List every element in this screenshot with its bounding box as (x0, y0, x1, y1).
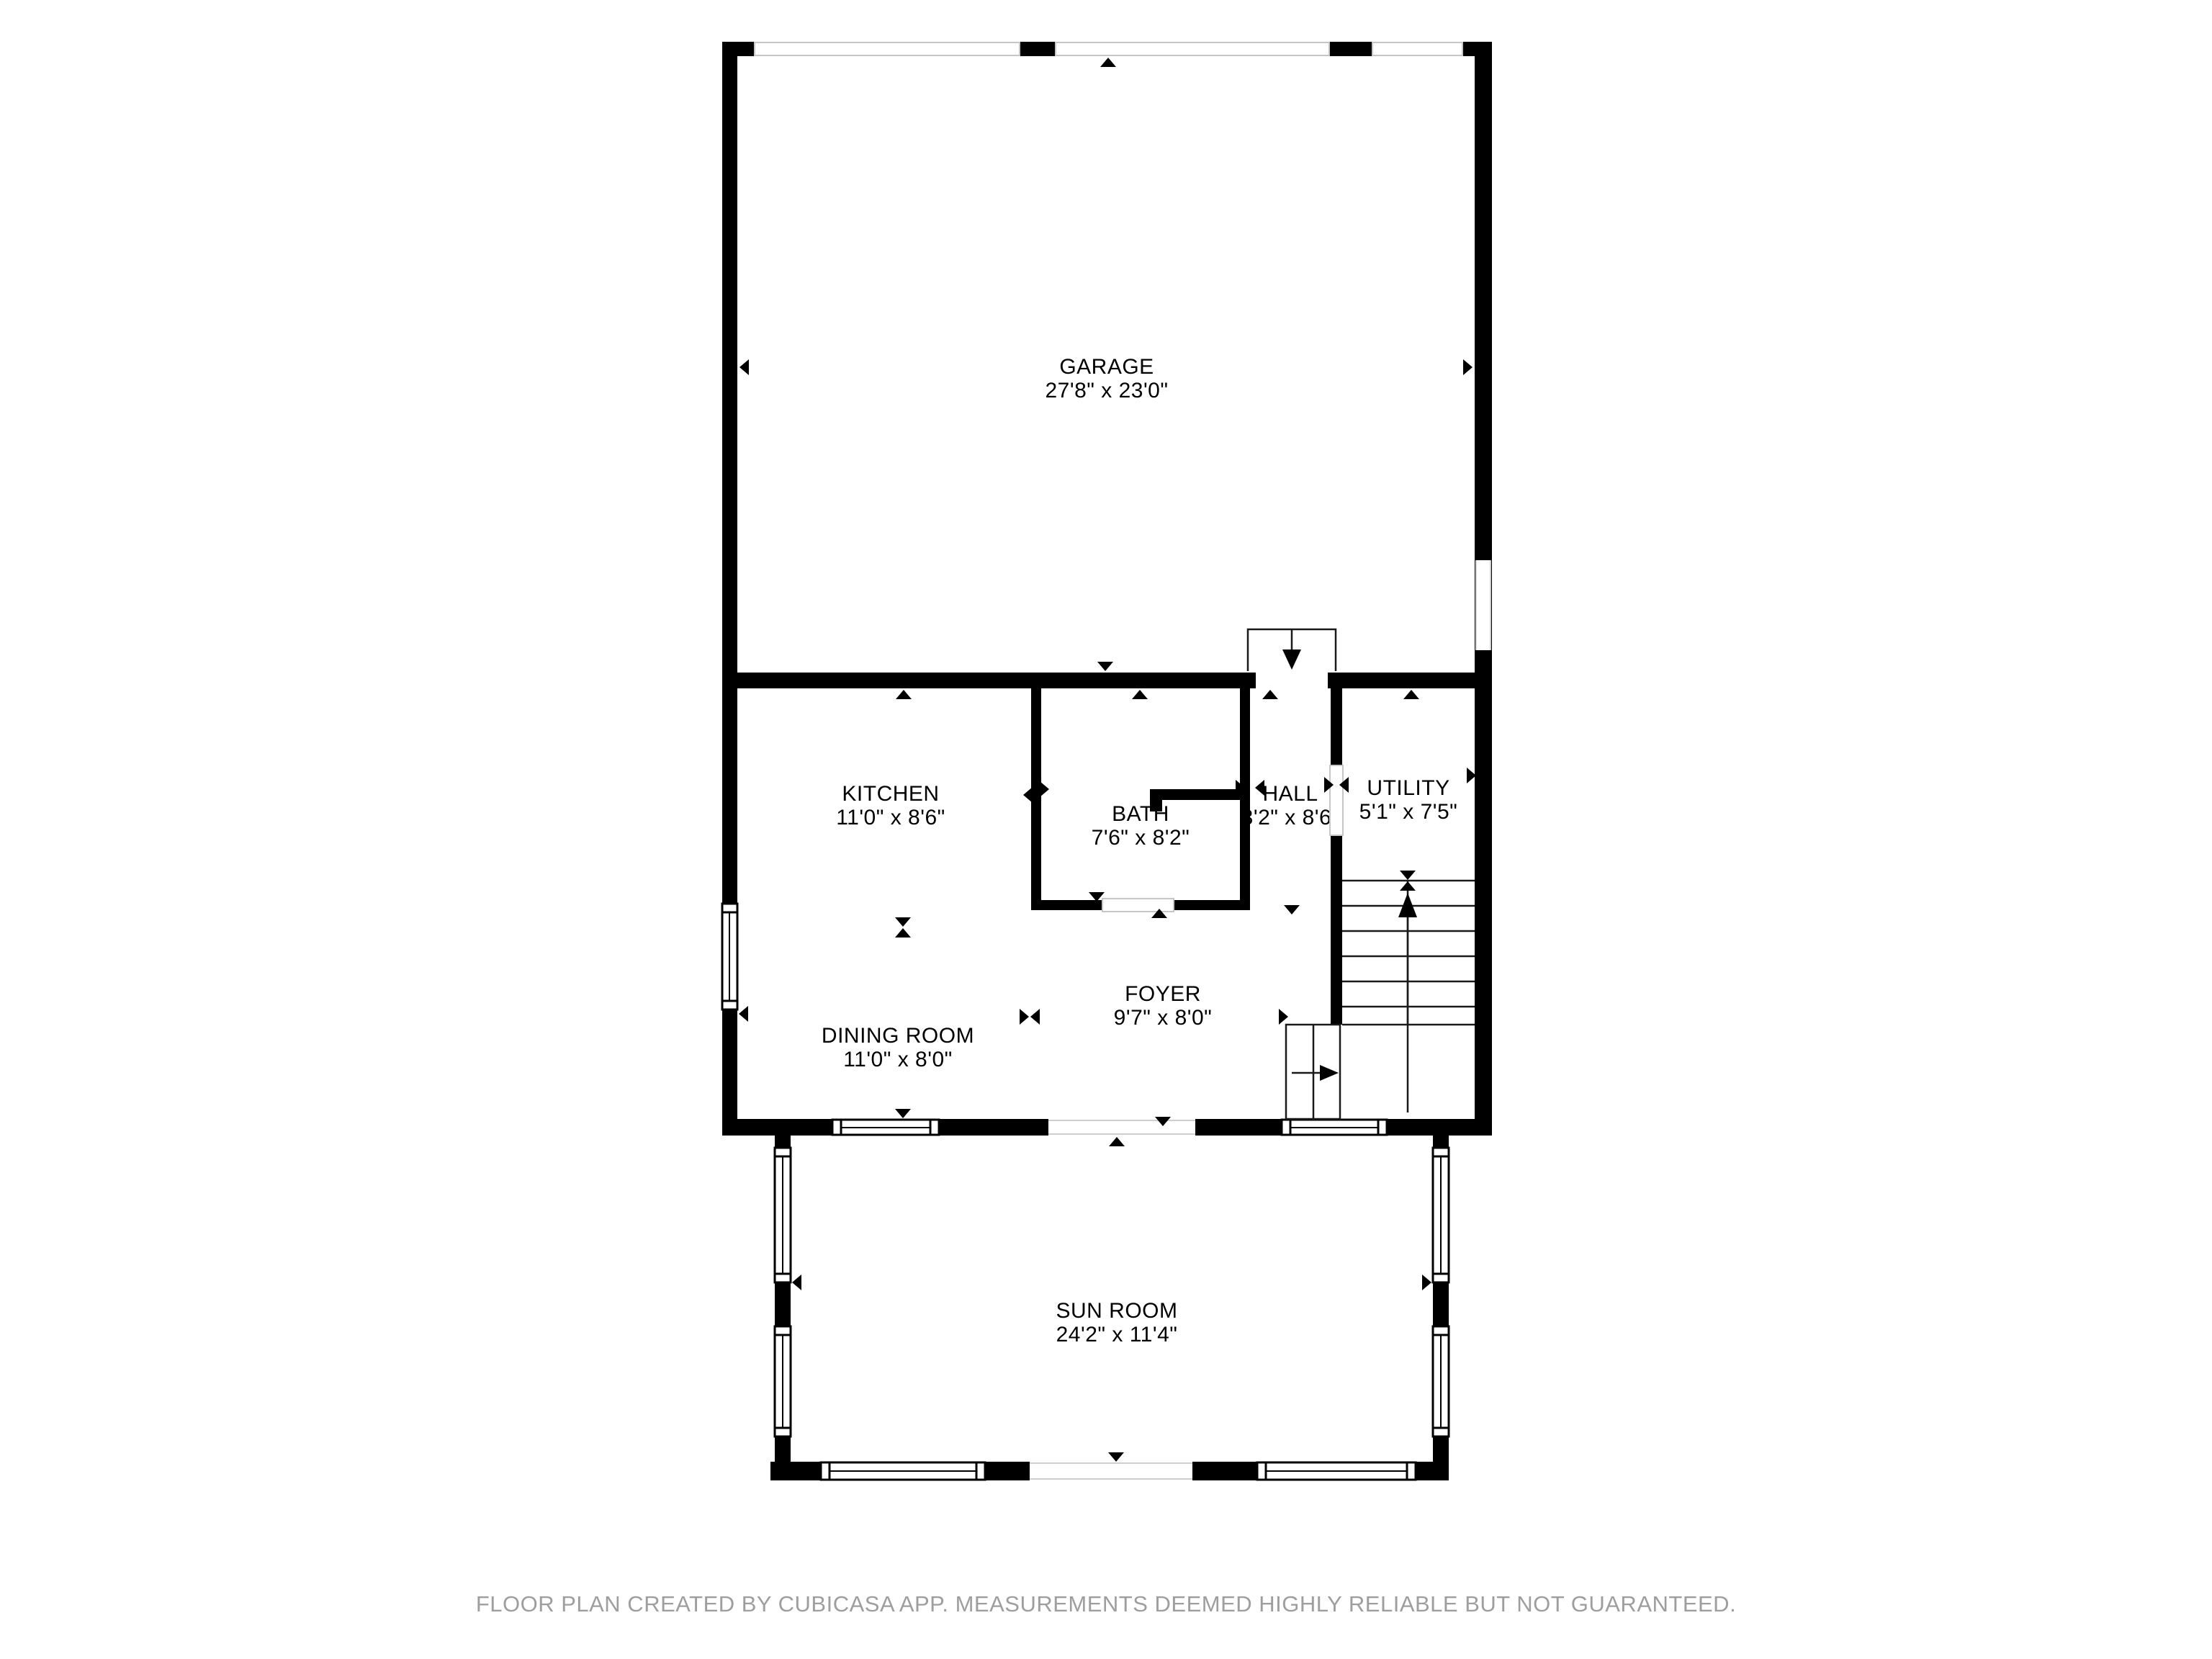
room-label-garage: GARAGE 27'8" x 23'0" (1045, 355, 1168, 403)
marker-garage-bottom (1097, 662, 1113, 671)
walls (722, 42, 1492, 1480)
window-sunroom-bottom-right (1257, 1462, 1416, 1480)
garage-name: GARAGE (1059, 355, 1154, 379)
footer-disclaimer: FLOOR PLAN CREATED BY CUBICASA APP. MEAS… (476, 1591, 1736, 1617)
garage-hall-doorway (1256, 671, 1328, 690)
marker-kitchen-window (739, 1006, 748, 1022)
marker-sunroom-top (1109, 1137, 1125, 1146)
garage-door-2 (1056, 42, 1329, 55)
window-sunroom-right-lower (1433, 1326, 1449, 1437)
wall-top-post-2 (1329, 42, 1372, 56)
marker-dining-foyer (1030, 1009, 1040, 1025)
marker-foyer-stair (1279, 1009, 1288, 1025)
marker-garage-left (739, 359, 749, 375)
garage-door-1 (755, 42, 1020, 55)
marker-garage-top (1100, 58, 1116, 67)
stair-boundary-marker (1400, 881, 1416, 891)
window-sunroom-left-lower (775, 1326, 791, 1437)
marker-kitchen-dining (895, 928, 911, 938)
staircase (1248, 629, 1475, 1119)
utility-name: UTILITY (1367, 776, 1449, 800)
sunroom-name: SUN ROOM (1056, 1299, 1178, 1323)
marker-kitchen-dining (895, 917, 911, 927)
dining-name: DINING ROOM (822, 1024, 974, 1048)
landing-arrow-head (1282, 649, 1301, 670)
marker-dining-foyer (1020, 1009, 1029, 1025)
kitchen-name: KITCHEN (842, 782, 939, 806)
room-label-bath: BATH 7'6" x 8'2" (1092, 802, 1190, 850)
hall-name: HALL (1262, 782, 1318, 806)
marker-hall-bottom (1284, 905, 1300, 914)
room-label-dining: DINING ROOM 11'0" x 8'0" (822, 1024, 974, 1071)
room-label-utility: UTILITY 5'1" x 7'5" (1359, 776, 1458, 824)
kitchen-dims: 11'0" x 8'6" (836, 806, 945, 829)
garage-landing (1248, 629, 1336, 671)
stair-boundary-marker (1400, 871, 1416, 880)
window-sunroom-right-upper (1433, 1148, 1449, 1282)
marker-sunroom-left (792, 1274, 801, 1290)
marker-hall-top (1262, 690, 1278, 699)
stair-lower-steps (1286, 1025, 1340, 1119)
floor-plan-canvas: HALL 3'2" x 8'6" (0, 0, 2212, 1659)
room-labels: GARAGE 27'8" x 23'0" KITCHEN 11'0" x 8'6… (822, 355, 1457, 1346)
foyer-name: FOYER (1125, 982, 1201, 1006)
marker-utility-top (1403, 690, 1419, 699)
wall-garage-bottom (737, 673, 1475, 688)
utility-dims: 5'1" x 7'5" (1359, 800, 1458, 824)
wall-top-post-1 (1020, 42, 1056, 56)
marker-bath-left-in (1040, 781, 1049, 797)
dining-dims: 11'0" x 8'0" (843, 1048, 953, 1071)
right-wall-opening (1475, 560, 1491, 650)
marker-garage-right (1463, 359, 1473, 375)
window-sunroom-bottom-left (821, 1462, 985, 1480)
marker-bath-right-out (1255, 780, 1264, 796)
bath-door (1102, 899, 1174, 912)
marker-sunroom-bottom (1108, 1452, 1124, 1462)
room-label-foyer: FOYER 9'7" x 8'0" (1114, 982, 1213, 1030)
window-foyer (1282, 1120, 1387, 1135)
garage-dims: 27'8" x 23'0" (1045, 379, 1168, 403)
wall-markers (739, 58, 1476, 1462)
wall-utility-left (1331, 688, 1342, 1025)
window-kitchen (722, 904, 737, 1010)
window-sunroom-left-upper (775, 1148, 791, 1282)
marker-kitchen-top (896, 690, 912, 699)
marker-sunroom-right (1422, 1274, 1431, 1290)
wall-bath-left (1031, 688, 1041, 910)
foyer-dims: 9'7" x 8'0" (1114, 1006, 1213, 1030)
stair-lower-arrow-head (1320, 1065, 1339, 1081)
utility-door (1330, 765, 1343, 835)
wall-bath-right (1240, 688, 1250, 910)
marker-bath-top (1132, 690, 1148, 699)
room-label-kitchen: KITCHEN 11'0" x 8'6" (836, 782, 945, 829)
wall-bath-stub (1150, 789, 1240, 800)
openings (755, 42, 1491, 1481)
bath-name: BATH (1112, 802, 1169, 826)
hall-dims: 3'2" x 8'6" (1241, 806, 1340, 829)
marker-dining-window (895, 1109, 911, 1118)
bath-dims: 7'6" x 8'2" (1092, 826, 1190, 850)
garage-door-3 (1372, 42, 1462, 55)
window-dining (832, 1120, 939, 1135)
sunroom-bottom-opening (1030, 1461, 1192, 1481)
sunroom-dims: 24'2" x 11'4" (1056, 1323, 1178, 1346)
marker-bath-left-out (1023, 787, 1033, 803)
room-label-sunroom: SUN ROOM 24'2" x 11'4" (1056, 1299, 1178, 1346)
